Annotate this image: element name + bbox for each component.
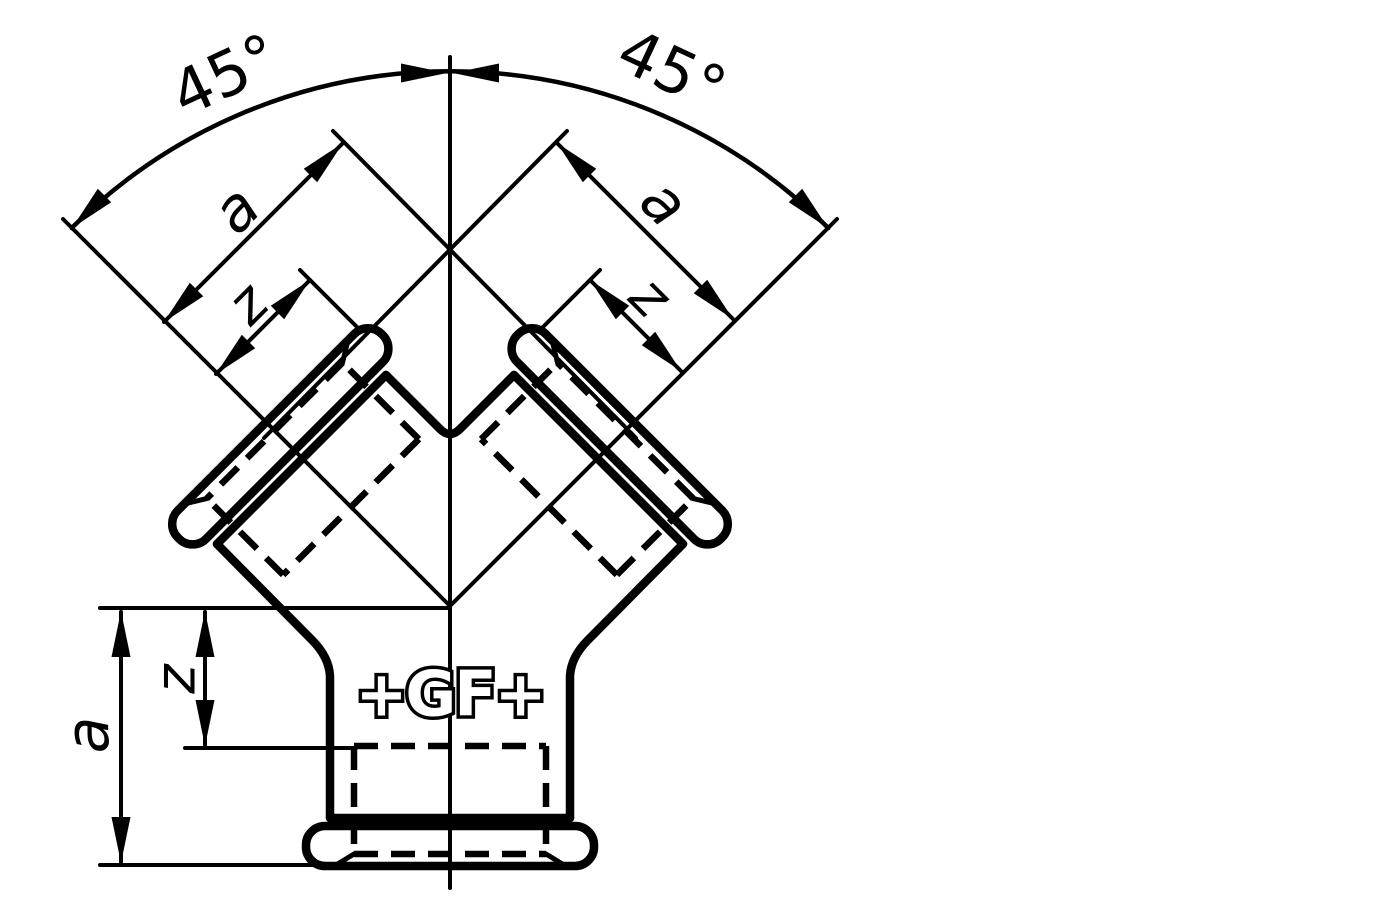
arc-top-left-arrowhead	[401, 64, 447, 83]
bottom-a-bottom-arrowhead	[112, 817, 131, 863]
left-a-lower-arrowhead	[157, 283, 203, 329]
left-z-label: z	[214, 269, 283, 338]
right-z-label: z	[616, 263, 685, 332]
left-z-lower-arrowhead	[209, 335, 255, 381]
arc-top-right-arrowhead	[453, 64, 499, 83]
bottom-z-top-arrowhead	[196, 611, 215, 657]
bottom-z-bottom-arrowhead	[196, 700, 215, 746]
bottom-a-label: a	[53, 717, 123, 754]
technical-drawing-canvas: 45° 45° a z a z z a +GF+	[0, 0, 1400, 900]
right-a-lower-arrowhead	[694, 280, 740, 326]
arc-left-arrowhead	[65, 189, 111, 235]
bottom-z-label: z	[144, 663, 209, 695]
gf-brand-logo: +GF+	[355, 658, 544, 731]
left-thread-line-2	[207, 499, 283, 575]
left-a-label: a	[198, 172, 274, 248]
right-a-label: a	[626, 165, 702, 241]
arc-right-arrowhead	[789, 189, 835, 235]
left-shoulder-and-wall	[217, 544, 330, 818]
centerlines	[63, 57, 837, 888]
left-z-upper-arrowhead	[271, 273, 317, 319]
left-a-upper-arrowhead	[304, 136, 350, 182]
fitting-dimension-drawing: 45° 45° a z a z z a +GF+	[0, 0, 1400, 900]
right-z-lower-arrowhead	[642, 332, 688, 378]
angle-label-left: 45°	[160, 19, 290, 132]
right-a-upper-arrowhead	[550, 136, 596, 182]
angle-label-right: 45°	[607, 14, 737, 127]
bottom-a-top-arrowhead	[112, 611, 131, 657]
right-shoulder-and-wall	[570, 544, 683, 818]
right-thread-line-1	[617, 499, 693, 575]
